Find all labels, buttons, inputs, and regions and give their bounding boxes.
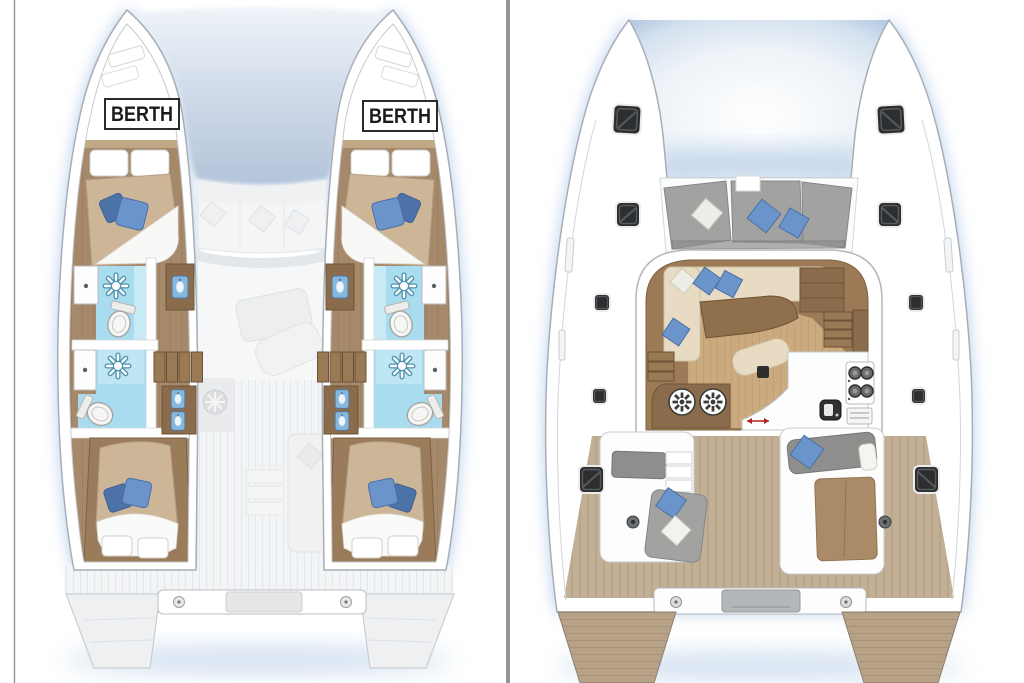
white-pillow (858, 443, 877, 471)
beam-ring-pin (177, 600, 180, 603)
berth-label-port: BERTH (105, 99, 179, 129)
ghost-step (246, 470, 284, 483)
foredeck-seating (660, 176, 858, 252)
oven-icon (847, 408, 872, 424)
cockpit-starboard-seating (780, 428, 884, 574)
berth-label-port-text: BERTH (111, 103, 173, 126)
bench-cutout (736, 176, 760, 191)
beam-ring-pin (344, 600, 347, 603)
salon (636, 250, 882, 432)
flybridge-step (666, 452, 692, 464)
panel-divider (506, 0, 510, 683)
cockpit-port-module (600, 432, 708, 563)
ghost-step (246, 486, 284, 499)
transom-beam-pad (226, 592, 302, 612)
bench-cushion (802, 182, 852, 248)
stove-icon (846, 362, 874, 404)
layout-drawing: BERTH BERTH (0, 0, 1024, 683)
transom-beam-pad (722, 590, 800, 612)
port-hull-steps (648, 352, 674, 381)
galley-cabinet (853, 310, 868, 354)
beam-ring-pin (844, 600, 847, 603)
galley-cabinet (800, 268, 844, 312)
bench-cushion (612, 451, 667, 479)
starboard-hull-steps (824, 312, 852, 347)
main-deck-plan (546, 20, 973, 683)
beam-ring-pin (674, 600, 677, 603)
berth-label-starboard-text: BERTH (369, 105, 431, 128)
lower-deck-plan: BERTH BERTH (58, 6, 462, 673)
table-pedestal (757, 366, 769, 378)
flybridge-step (666, 466, 692, 478)
berth-label-starboard: BERTH (363, 101, 437, 131)
ghost-salon-furniture (192, 180, 332, 566)
trampoline-shadow (660, 150, 860, 178)
galley-sink-icon (820, 400, 841, 420)
catamaran-layout-sheet: BERTH BERTH (0, 0, 1024, 683)
cushion-seam (672, 241, 845, 249)
aft-cockpit (558, 428, 960, 683)
ghost-step (246, 502, 284, 515)
